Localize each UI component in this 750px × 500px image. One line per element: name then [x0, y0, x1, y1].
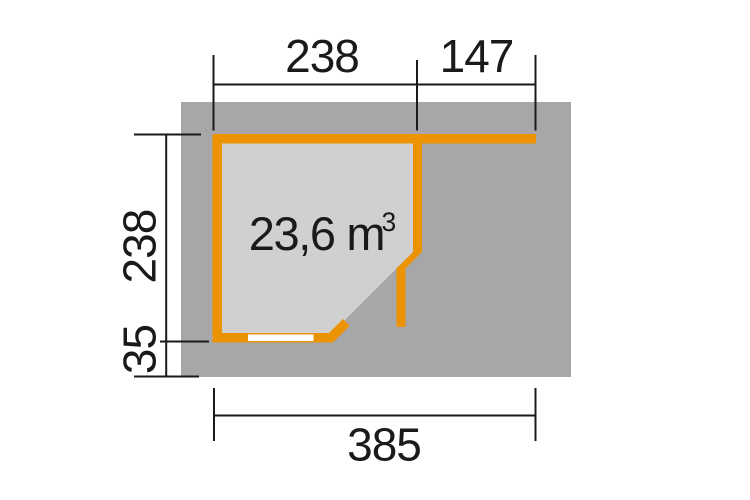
- svg-text:147: 147: [440, 30, 514, 82]
- svg-text:238: 238: [114, 210, 166, 284]
- svg-text:35: 35: [114, 325, 166, 374]
- svg-text:385: 385: [347, 419, 421, 471]
- svg-text:238: 238: [285, 30, 359, 82]
- svg-text:3: 3: [382, 207, 397, 237]
- svg-text:23,6 m: 23,6 m: [249, 207, 384, 260]
